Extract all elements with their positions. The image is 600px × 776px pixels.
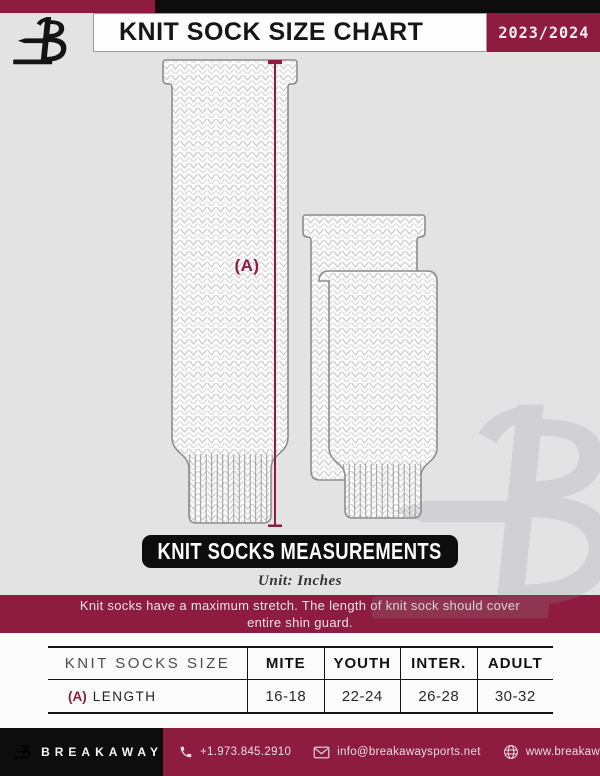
page-title: KNIT SOCK SIZE CHART xyxy=(94,18,486,47)
top-accent-maroon-segment xyxy=(0,0,155,13)
unit-note: Unit: Inches xyxy=(0,573,600,590)
measurements-banner-text: KNIT SOCKS MEASUREMENTS xyxy=(158,538,442,565)
size-table: KNIT SOCKS SIZE MITE YOUTH INTER. ADULT … xyxy=(48,646,553,714)
phone-number: +1.973.845.2910 xyxy=(200,746,291,758)
knit-sock-illustration xyxy=(0,52,600,595)
column-header-adult: ADULT xyxy=(477,648,554,680)
breakaway-footer-logo-icon xyxy=(15,737,33,767)
stretch-note-line1: Knit socks have a maximum stretch. The l… xyxy=(80,597,520,614)
phone-icon xyxy=(179,745,193,759)
breakaway-logo-icon xyxy=(13,15,77,68)
title-box: KNIT SOCK SIZE CHART xyxy=(93,13,487,52)
row-label-text: LENGTH xyxy=(93,689,157,704)
sock-diagram-area: (A) KNIT SOCKS MEASUREMENTS Unit: Inches xyxy=(0,52,600,595)
length-value-adult: 30-32 xyxy=(477,680,554,712)
sock-large xyxy=(163,60,297,524)
length-value-inter: 26-28 xyxy=(400,680,477,712)
website-url: www.breakawaysports.net xyxy=(526,746,600,758)
footer-contacts: +1.973.845.2910 info@breakawaysports.net xyxy=(163,728,600,776)
season-label: 2023/2024 xyxy=(498,23,589,42)
stretch-note-banner: Knit socks have a maximum stretch. The l… xyxy=(0,595,600,633)
measurements-banner: KNIT SOCKS MEASUREMENTS xyxy=(142,535,458,568)
website-contact[interactable]: www.breakawaysports.net xyxy=(503,744,600,760)
size-table-corner-header: KNIT SOCKS SIZE xyxy=(48,648,247,680)
length-value-mite: 16-18 xyxy=(247,680,324,712)
column-header-mite: MITE xyxy=(247,648,324,680)
top-accent-bar xyxy=(0,0,600,13)
sock-small xyxy=(319,271,437,519)
stretch-note-line2: entire shin guard. xyxy=(247,614,353,631)
brand-name: BREAKAWAY xyxy=(41,745,163,759)
email-contact[interactable]: info@breakawaysports.net xyxy=(313,746,481,759)
table-section: KNIT SOCKS SIZE MITE YOUTH INTER. ADULT … xyxy=(0,633,600,728)
row-header-length: (A) LENGTH xyxy=(48,680,247,712)
dimension-A-label: (A) xyxy=(224,256,270,276)
length-value-youth: 22-24 xyxy=(324,680,401,712)
column-header-inter: INTER. xyxy=(400,648,477,680)
footer-brand-block: BREAKAWAY xyxy=(0,728,163,776)
row-dimension-tag: (A) xyxy=(68,689,87,704)
email-icon xyxy=(313,746,330,759)
size-chart-page: KNIT SOCK SIZE CHART 2023/2024 xyxy=(0,0,600,776)
globe-icon xyxy=(503,744,519,760)
email-address: info@breakawaysports.net xyxy=(337,746,481,758)
footer: BREAKAWAY +1.973.845.2910 info@breakaway… xyxy=(0,728,600,776)
column-header-youth: YOUTH xyxy=(324,648,401,680)
phone-contact[interactable]: +1.973.845.2910 xyxy=(179,745,291,759)
season-box: 2023/2024 xyxy=(487,13,600,52)
